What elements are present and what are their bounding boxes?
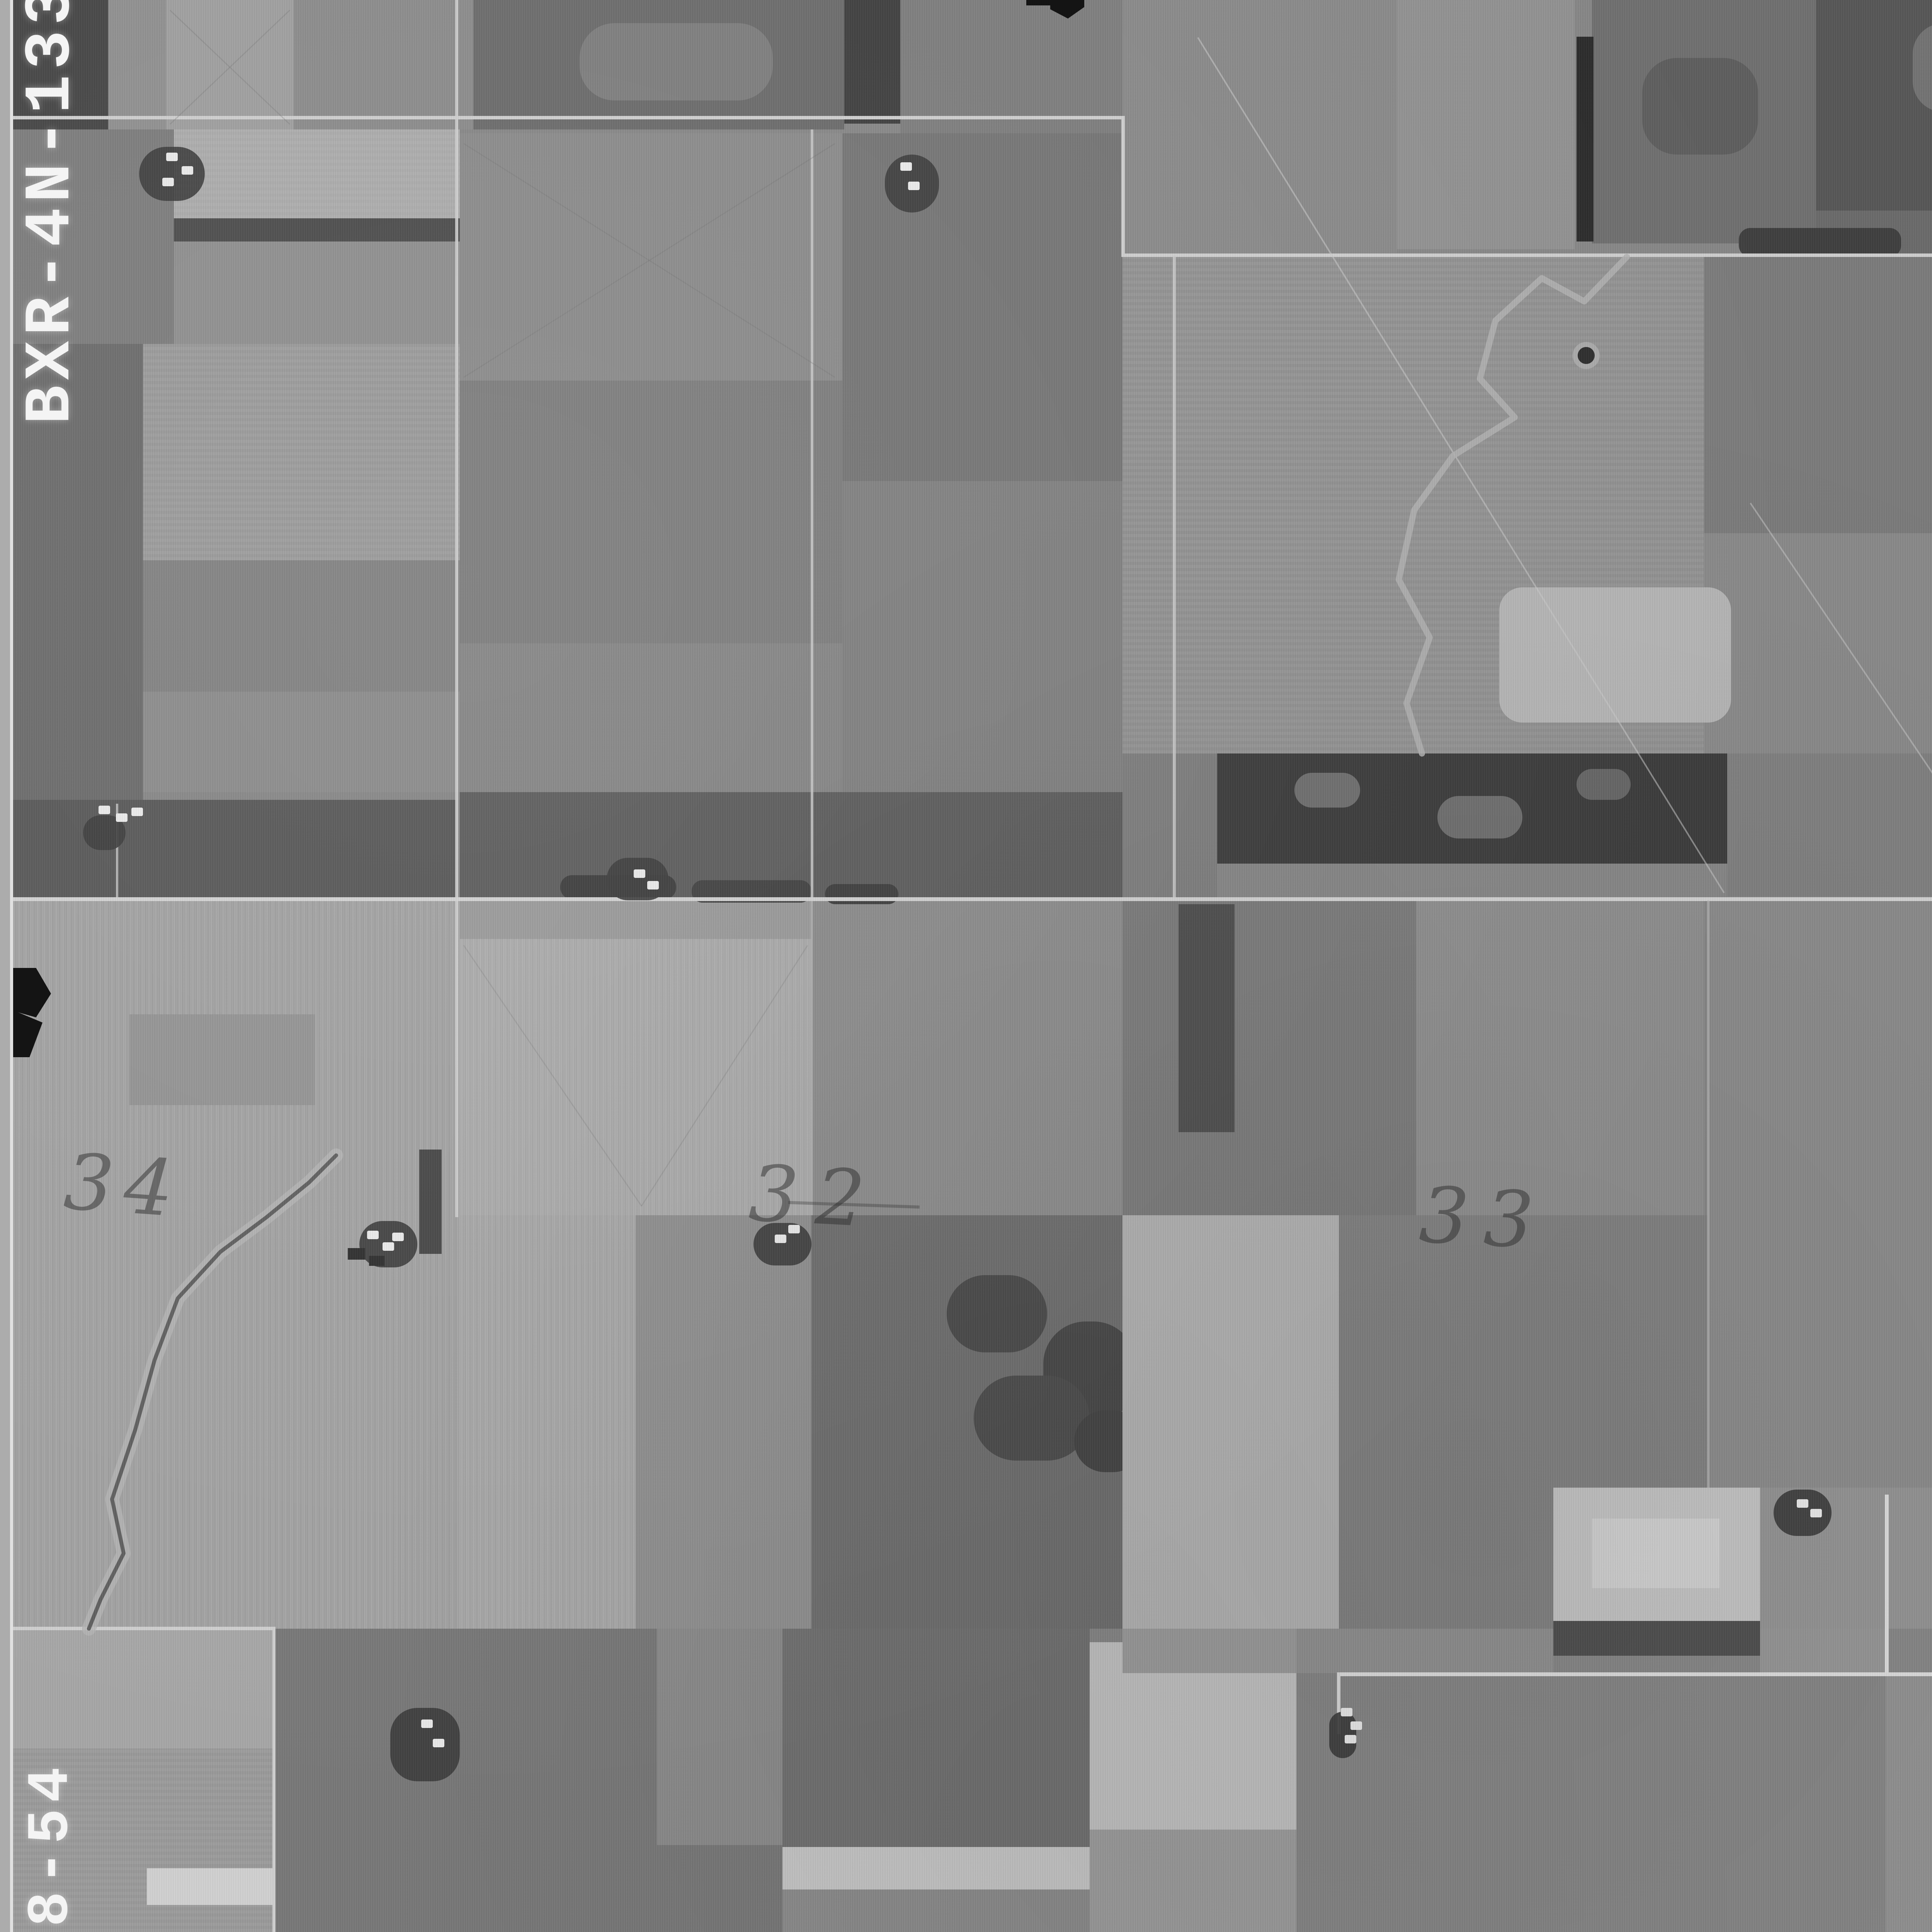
photo-id-label: BXR-4N-133: [15, 0, 88, 424]
aerial-photo: 343233 BXR-4N-133 8-28-54: [0, 0, 1932, 1932]
film-edges-layer: [0, 0, 1932, 1932]
photo-date-label: 8-28-54: [18, 1773, 85, 1932]
film-edge-left-white-line: [10, 0, 13, 1932]
